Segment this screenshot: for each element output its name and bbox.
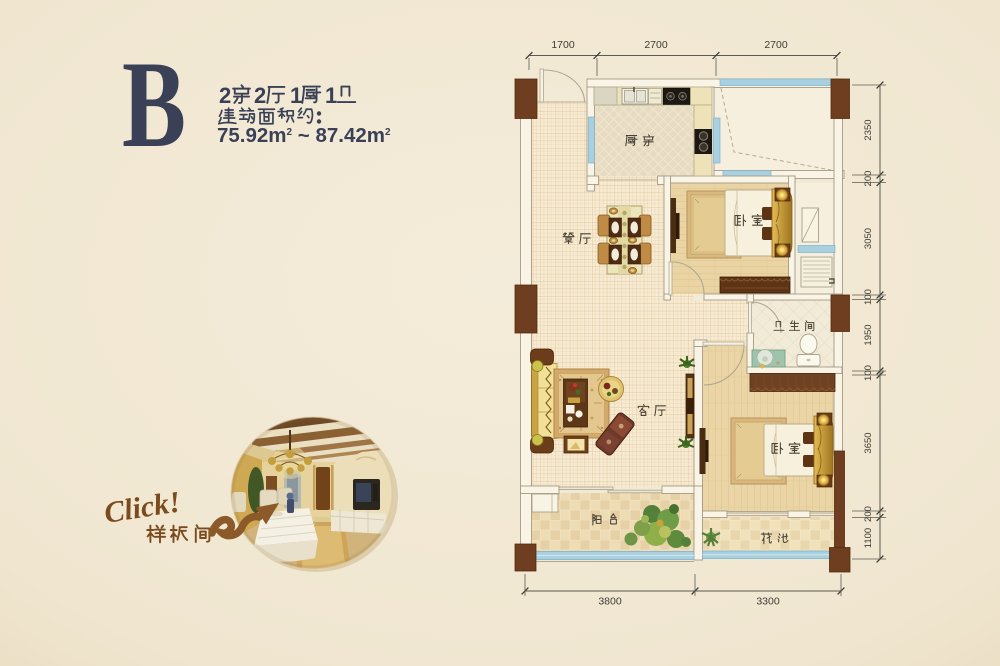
svg-text:2700: 2700 (764, 39, 788, 51)
svg-text:2350: 2350 (863, 119, 874, 140)
svg-text:1: 1 (325, 83, 337, 108)
svg-text:100: 100 (863, 289, 874, 305)
svg-text:1100: 1100 (863, 528, 874, 548)
svg-text:2: 2 (219, 83, 231, 108)
svg-text:2: 2 (254, 83, 266, 108)
svg-text:1700: 1700 (551, 39, 575, 51)
svg-text:1: 1 (290, 83, 302, 108)
svg-text:200: 200 (863, 506, 874, 522)
svg-text:75.92m2 ~ 87.42m2: 75.92m2 ~ 87.42m2 (217, 124, 391, 147)
svg-text:B: B (122, 36, 186, 173)
svg-text:3650: 3650 (863, 432, 874, 453)
svg-text:3300: 3300 (756, 596, 780, 608)
svg-text:1950: 1950 (863, 324, 874, 345)
svg-text:100: 100 (863, 365, 874, 381)
svg-text:200: 200 (863, 171, 874, 187)
svg-text:3050: 3050 (863, 228, 874, 249)
svg-text:2700: 2700 (644, 39, 668, 51)
svg-text:3800: 3800 (598, 596, 622, 608)
